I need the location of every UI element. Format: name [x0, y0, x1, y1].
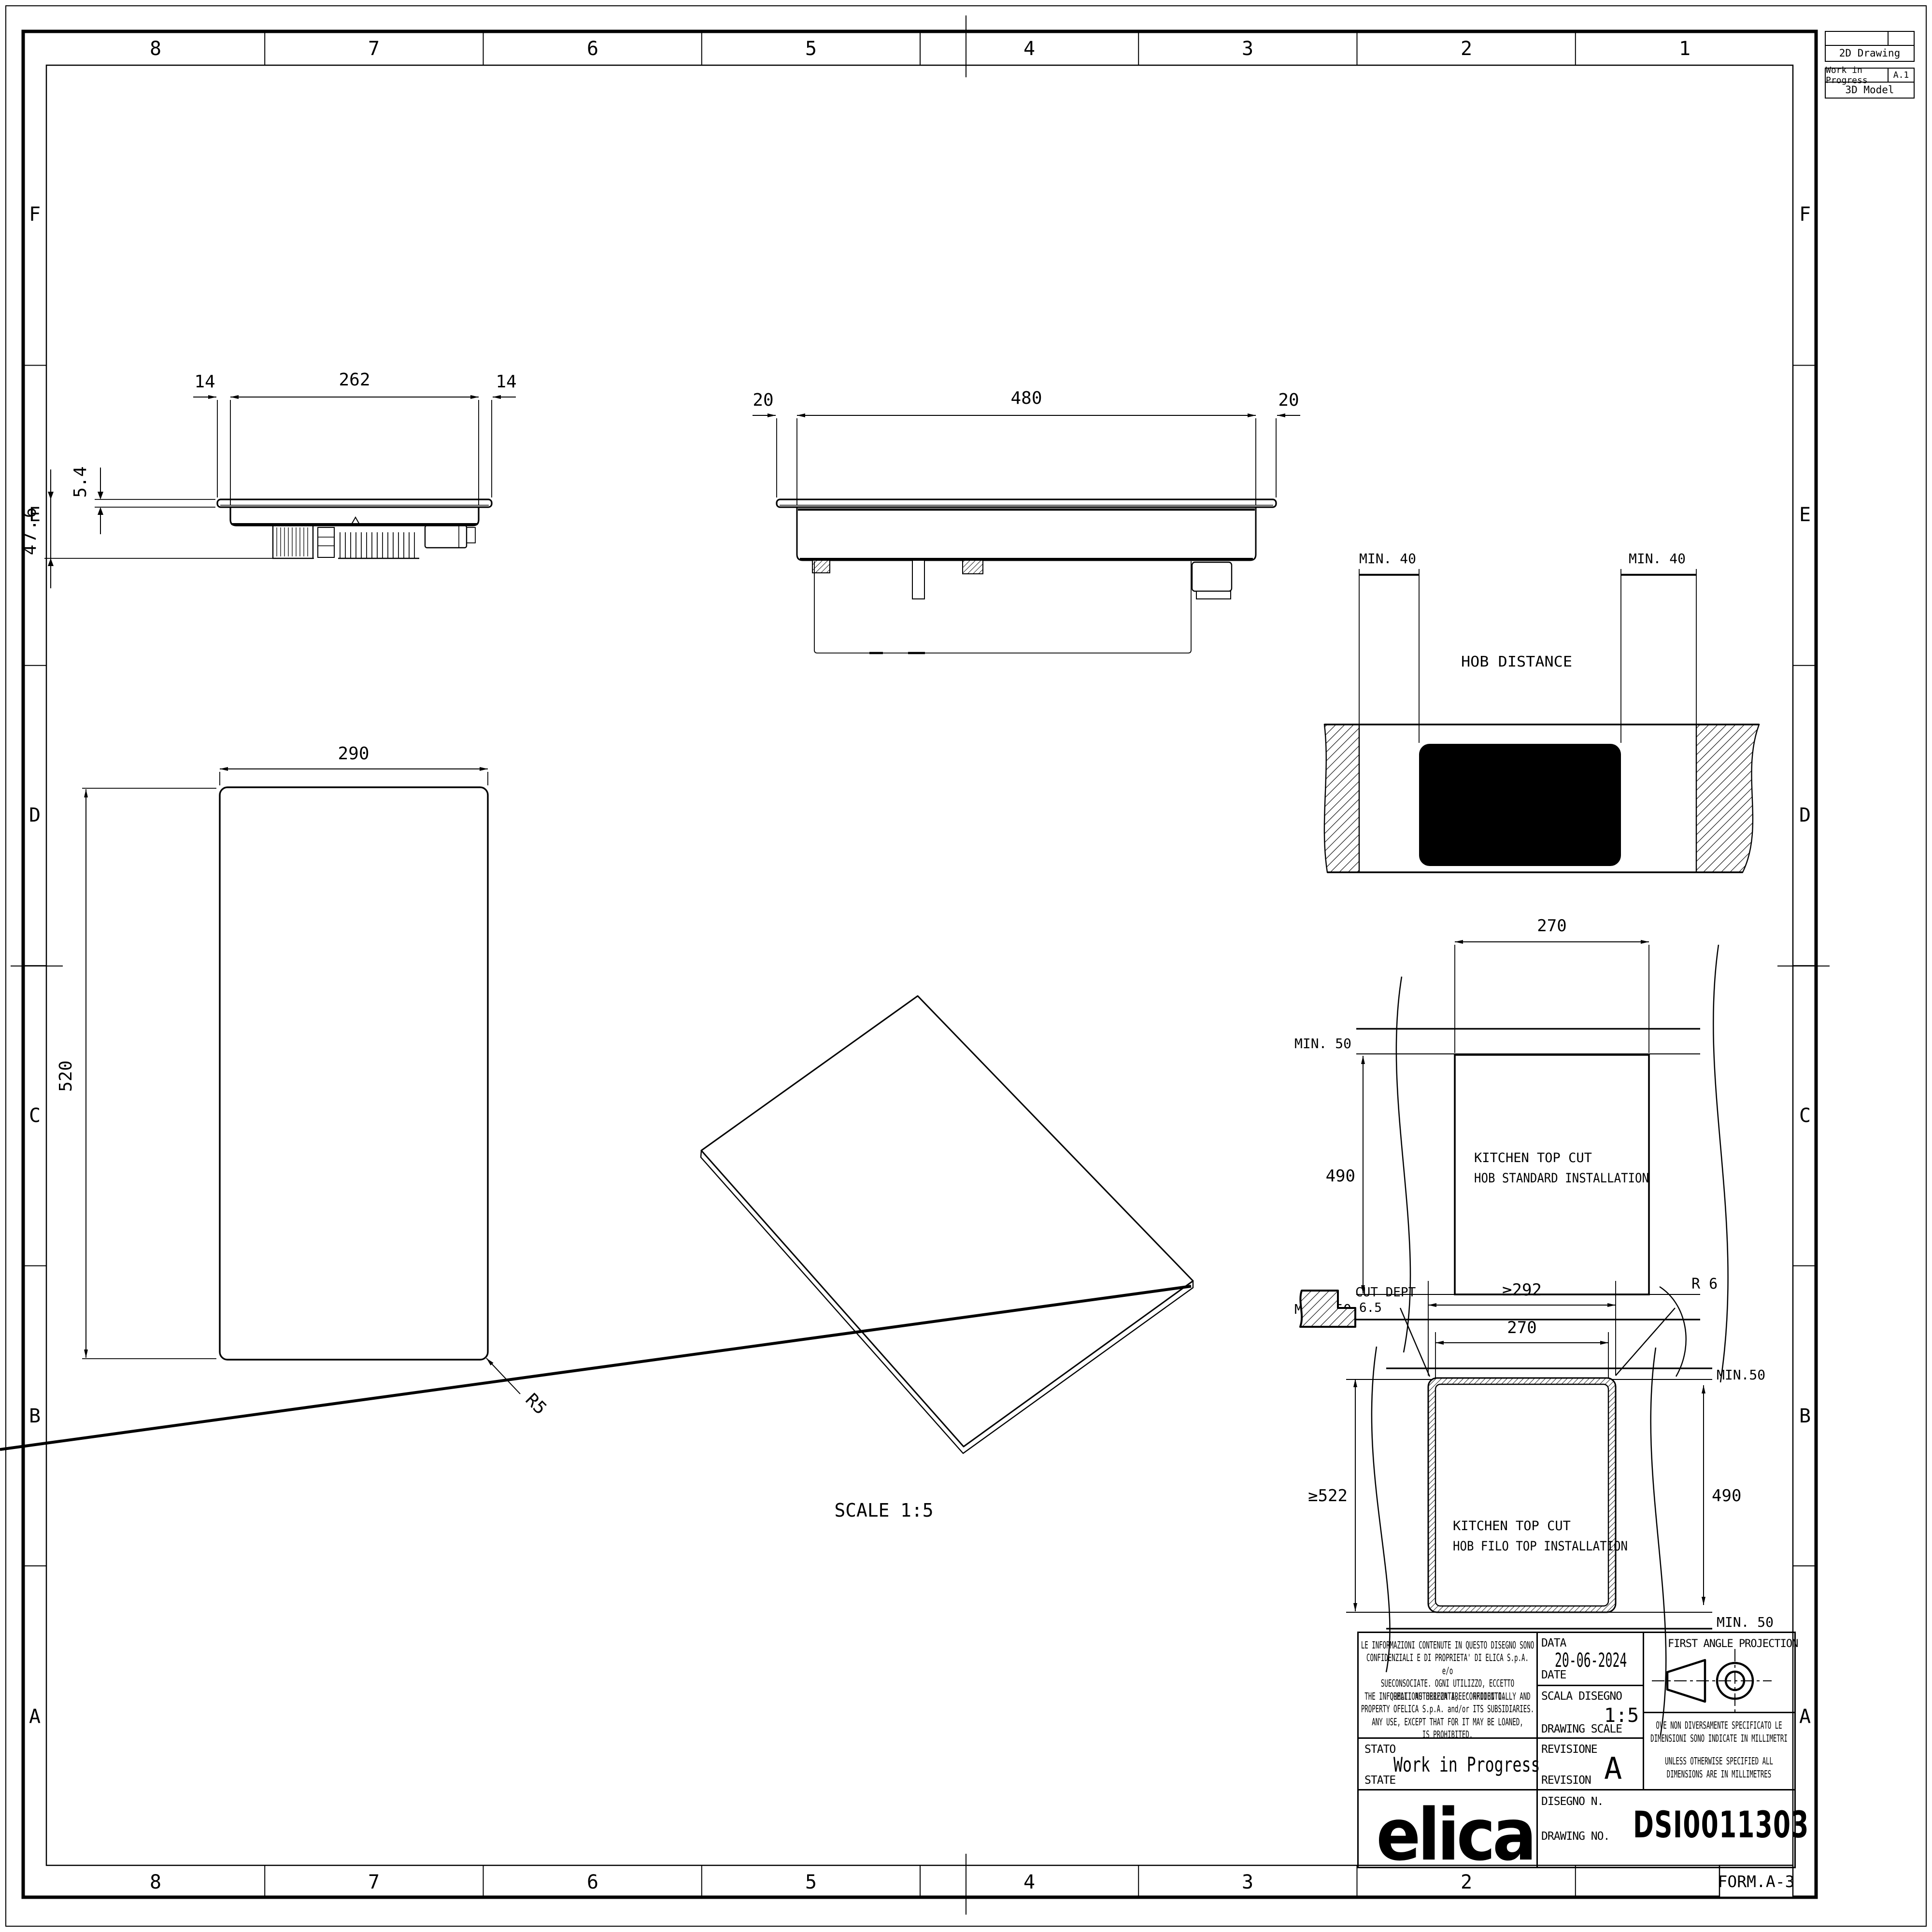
top-view: 290 520 R5 — [56, 744, 550, 1419]
corner-status-label: Work in Progress — [1826, 69, 1889, 82]
tb-divider-h-data — [1536, 1685, 1644, 1686]
tb-scala-label: SCALA DISEGNO — [1541, 1690, 1622, 1703]
std-label-line2: HOB STANDARD INSTALLATION — [1474, 1171, 1649, 1186]
tb-date-value: 20-06-2024 — [1555, 1649, 1627, 1672]
title-block: LE INFORMAZIONI CONTENUTE IN QUESTO DISE… — [1357, 1632, 1796, 1868]
grid-col-top: 1 — [1679, 38, 1690, 60]
front-dim-14-right: 14 — [496, 372, 516, 392]
tb-projection-label: FIRST ANGLE PROJECTION — [1668, 1638, 1798, 1650]
filo-label-line1: KITCHEN TOP CUT — [1453, 1519, 1571, 1534]
grid-col-bottom: 8 — [150, 1871, 161, 1893]
grid-col-bottom: 7 — [368, 1871, 380, 1893]
side-dim-480: 480 — [1010, 388, 1042, 408]
hob-distance-title: HOB DISTANCE — [1461, 653, 1572, 670]
form-label: FORM.A-3 — [1718, 1872, 1795, 1891]
grid-row-left: A — [29, 1705, 41, 1728]
tb-state-value: Work in Progress — [1393, 1753, 1540, 1776]
hob-dim-min40-right: MIN. 40 — [1629, 551, 1686, 567]
side-dim-20-left: 20 — [753, 390, 773, 410]
tb-stato-label: STATO — [1364, 1743, 1395, 1756]
cut-profile-detail — [1300, 1291, 1355, 1327]
filo-dim-min50-bottom: MIN. 50 — [1717, 1614, 1774, 1630]
filo-dim-490: 490 — [1712, 1486, 1741, 1506]
grid-row-right: A — [1799, 1705, 1811, 1728]
form-box: FORM.A-3 — [1718, 1865, 1795, 1897]
tb-revision-label: REVISION — [1541, 1774, 1591, 1787]
grid-col-bottom: 6 — [587, 1871, 598, 1893]
grid-row-left: B — [29, 1405, 41, 1427]
iso-scale-label: SCALE 1:5 — [835, 1500, 934, 1521]
grid-col-bottom: 5 — [805, 1871, 817, 1893]
corner-2d-drawing-label: 2D Drawing — [1826, 46, 1914, 60]
tb-scale-value: 1:5 — [1604, 1705, 1639, 1727]
tb-disegno-label: DISEGNO N. — [1541, 1795, 1603, 1808]
grid-col-top: 4 — [1023, 38, 1035, 60]
grid-col-bottom: 3 — [1242, 1871, 1253, 1893]
front-dim-262: 262 — [339, 370, 370, 390]
front-dim-47-6: 47.6 — [20, 506, 40, 555]
grid-col-top: 2 — [1461, 38, 1472, 60]
tb-note-en: UNLESS OTHERWISE SPECIFIED ALL DIMENSION… — [1644, 1755, 1794, 1781]
front-dim-5-4: 5.4 — [71, 466, 90, 497]
tb-data-label: DATA — [1541, 1637, 1566, 1649]
filo-label-line2: HOB FILO TOP INSTALLATION — [1453, 1539, 1628, 1554]
grid-row-right: B — [1799, 1405, 1811, 1427]
tb-divider-h-proj — [1643, 1712, 1794, 1713]
std-dim-490: 490 — [1326, 1166, 1355, 1186]
std-label-line1: KITCHEN TOP CUT — [1474, 1151, 1592, 1165]
break-line — [1713, 945, 1728, 1382]
grid-row-right: F — [1799, 203, 1811, 226]
corner-revision-label: A.1 — [1889, 69, 1914, 82]
grid-col-top: 5 — [805, 38, 817, 60]
hob-dim-min40-left: MIN. 40 — [1359, 551, 1416, 567]
tb-legal-en: THE INFORMATIONS HEREON ARE CONFIDENTIAL… — [1361, 1690, 1534, 1741]
grid-row-left: D — [29, 804, 41, 826]
std-dim-min50-top: MIN. 50 — [1294, 1036, 1351, 1051]
tb-divider-v1 — [1536, 1633, 1538, 1867]
grid-row-right: D — [1799, 804, 1811, 826]
grid-col-top: 3 — [1242, 38, 1253, 60]
filo-dim-r6: R 6 — [1691, 1276, 1718, 1293]
elica-logo: elica — [1376, 1793, 1534, 1876]
grid-col-top: 7 — [368, 38, 380, 60]
front-view: 14 262 14 5.4 47.6 — [20, 370, 517, 588]
grid-col-top: 6 — [587, 38, 598, 60]
grid-row-right: C — [1799, 1105, 1811, 1127]
corner-2d-cell-empty-narrow — [1889, 32, 1914, 45]
tb-divider-h-bottom — [1359, 1789, 1794, 1790]
filo-dim-min50-top: MIN.50 — [1717, 1367, 1765, 1383]
grid-col-top: 8 — [150, 38, 161, 60]
grid-row-right: E — [1799, 504, 1811, 526]
tb-note-it: OVE NON DIVERSAMENTE SPECIFICATO LE DIME… — [1644, 1719, 1794, 1745]
drawing-sheet: 8 7 6 5 4 3 2 1 8 7 6 5 4 3 2 F E D C B … — [0, 0, 1932, 1932]
grid-row-left: C — [29, 1105, 41, 1127]
corner-table-2d: 2D Drawing — [1825, 31, 1915, 62]
grid-row-left: F — [29, 203, 41, 226]
filo-cutdepth-label: CUT DEPT — [1355, 1285, 1416, 1300]
tb-revisione-label: REVISIONE — [1541, 1743, 1597, 1756]
top-dim-520: 520 — [56, 1060, 76, 1092]
break-line — [1372, 1347, 1390, 1672]
iso-view: SCALE 1:5 — [0, 996, 1193, 1521]
std-dim-270: 270 — [1537, 916, 1566, 936]
tb-state-label: STATE — [1364, 1774, 1395, 1787]
side-dim-20-right: 20 — [1278, 390, 1299, 410]
side-view: 20 480 20 — [753, 388, 1300, 653]
tb-revision-value: A — [1604, 1751, 1622, 1786]
filo-dim-522: ≥522 — [1308, 1486, 1348, 1506]
filo-cutdepth-value: 6.5 — [1359, 1301, 1382, 1315]
corner-3d-model-label: 3D Model — [1826, 83, 1914, 97]
corner-table-3d: Work in Progress A.1 3D Model — [1825, 68, 1915, 99]
front-dim-14-left: 14 — [194, 372, 215, 392]
top-dim-290: 290 — [338, 744, 369, 764]
filo-dim-292: ≥292 — [1502, 1280, 1542, 1300]
tb-drawing-no-value: DSI0011303 — [1633, 1803, 1809, 1846]
grid-col-bottom: 4 — [1023, 1871, 1035, 1893]
tb-drawing-no-label: DRAWING NO. — [1541, 1830, 1609, 1843]
top-dim-r5: R5 — [522, 1390, 551, 1419]
filo-dim-270: 270 — [1507, 1318, 1536, 1337]
corner-2d-cell-empty-wide — [1826, 32, 1889, 45]
hob-distance-view: MIN. 40 MIN. 40 HOB DISTANCE — [1324, 551, 1759, 872]
